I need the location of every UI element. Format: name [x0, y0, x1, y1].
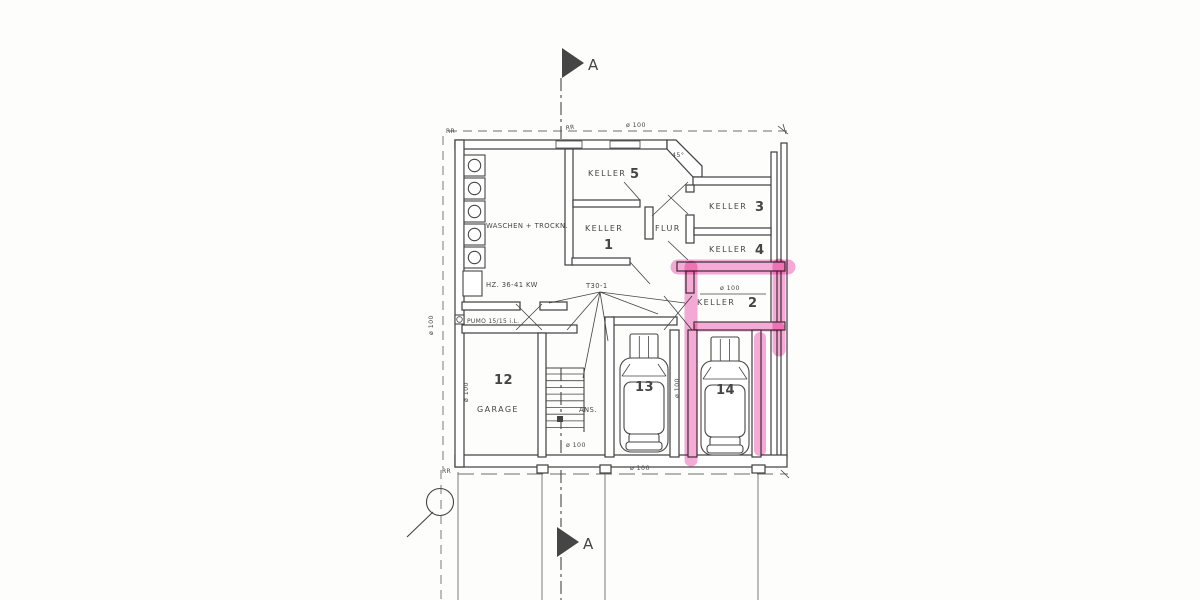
- label-garage: GARAGE: [477, 405, 519, 414]
- corner-mark-top-right: [778, 124, 788, 134]
- dim-stairs: ø 100: [566, 442, 586, 449]
- scanned-floor-plan: A A WASCHEN + TROCKN. HZ. 36-41 KW KELLE…: [0, 0, 1200, 600]
- label-ans: ANS.: [579, 406, 597, 414]
- label-waschen: WASCHEN + TROCKN.: [486, 222, 568, 230]
- number-keller2: 2: [748, 296, 758, 311]
- label-t30: T30-1: [585, 282, 608, 290]
- wall-keller1-right: [645, 207, 653, 239]
- section-arrow-icon: [557, 527, 579, 557]
- wall-waschen-right: [565, 149, 573, 265]
- dim-left-boundary: ø 100: [428, 315, 435, 335]
- wall-stall13-top: [612, 317, 677, 325]
- wall-waschen-bottom-b: [540, 302, 567, 310]
- wall-keller1-bottom: [572, 258, 630, 265]
- number-stall13: 13: [635, 380, 654, 395]
- wall-bottom: [455, 455, 787, 467]
- dim-top: ø 100: [626, 122, 646, 129]
- number-garage: 12: [494, 373, 513, 388]
- number-keller3: 3: [755, 200, 765, 215]
- dim-bottom: ø 100: [630, 465, 650, 472]
- label-rr-top-left: RR: [446, 128, 455, 135]
- dim-garage-wall: ø 100: [463, 382, 470, 402]
- washing-machines: [464, 155, 485, 268]
- label-keller4: KELLER: [709, 245, 747, 254]
- pump-symbol: [455, 315, 464, 324]
- window-top-1: [556, 141, 582, 148]
- wall-keller5-bottom: [573, 200, 640, 207]
- site-circle: [407, 489, 454, 538]
- label-pump: PUMO 15/15 i.L.: [467, 318, 519, 325]
- label-keller3: KELLER: [709, 202, 747, 211]
- label-flur: FLUR: [655, 224, 681, 233]
- dim-keller2: ø 100: [720, 285, 740, 292]
- wall-keller3-top: [693, 177, 774, 185]
- wall-garage-right: [538, 333, 546, 457]
- wall-waschen-bottom-a: [462, 302, 520, 310]
- number-stall14: 14: [716, 383, 735, 398]
- wall-keller3-4-divider: [694, 228, 771, 235]
- wall-flur-right-a: [686, 185, 694, 192]
- wall-flur-right-b: [686, 215, 694, 243]
- label-keller1: KELLER: [585, 224, 623, 233]
- heater-unit: [463, 271, 482, 296]
- number-keller4: 4: [755, 243, 765, 258]
- section-label-bottom: A: [583, 535, 594, 553]
- label-keller2: KELLER: [697, 298, 735, 307]
- section-arrow-icon: [562, 48, 584, 78]
- label-rr-top-mid: RR: [565, 124, 575, 132]
- stair-direction-dot: [557, 416, 563, 422]
- number-keller5: 5: [630, 167, 640, 182]
- floor-plan-drawing: A A WASCHEN + TROCKN. HZ. 36-41 KW KELLE…: [0, 0, 1200, 600]
- section-flag-top: A: [562, 48, 599, 78]
- dim-stall-divider: ø 100: [674, 378, 681, 398]
- section-flag-bottom: A: [557, 527, 594, 557]
- section-label-top: A: [588, 56, 599, 74]
- label-keller5: KELLER: [588, 169, 626, 178]
- wall-stall13-left: [605, 317, 614, 457]
- label-heizung: HZ. 36-41 KW: [486, 281, 538, 289]
- label-rr-bottom-left: RR: [442, 468, 451, 475]
- label-angle-45: 45°: [672, 151, 684, 159]
- number-keller1: 1: [604, 238, 614, 253]
- window-top-2: [610, 141, 640, 148]
- stairs: [546, 368, 584, 432]
